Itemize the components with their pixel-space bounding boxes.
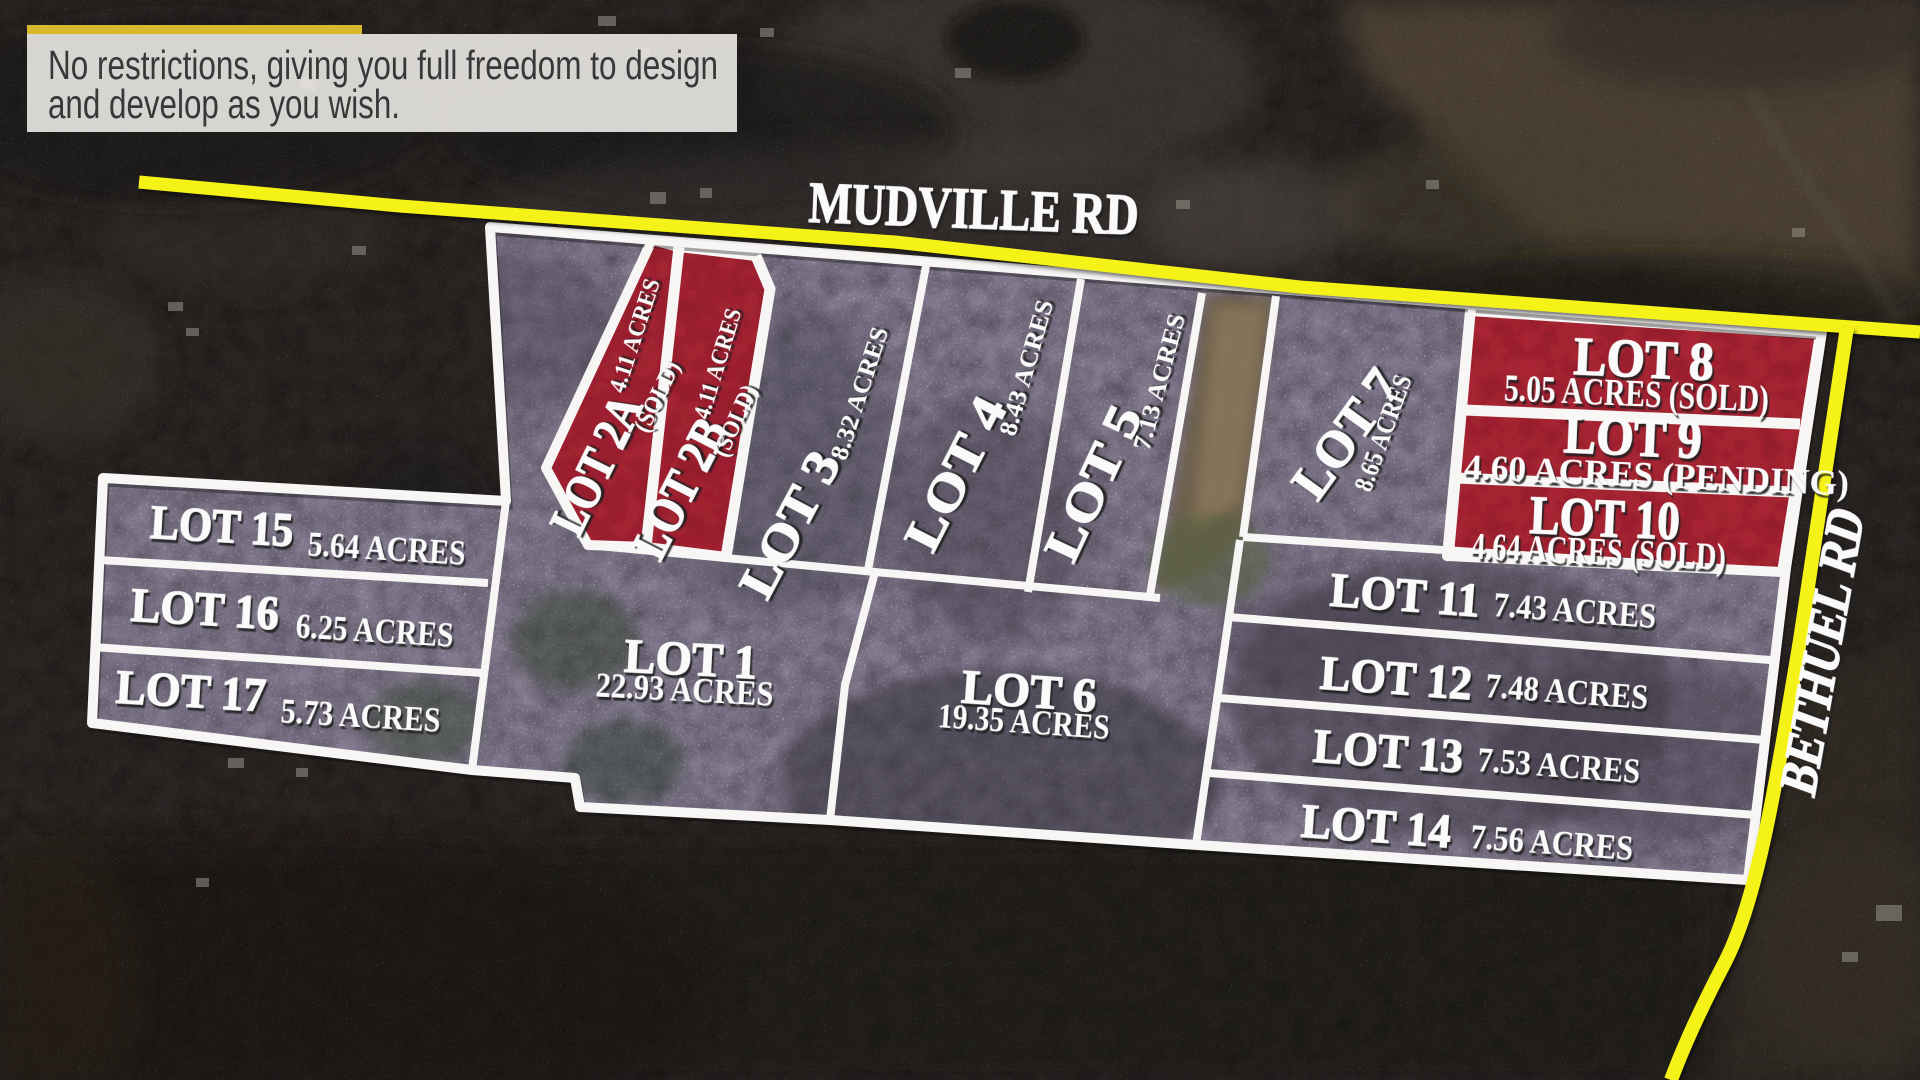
svg-text:LOT 13: LOT 13 — [1311, 720, 1464, 784]
svg-text:LOT 17: LOT 17 — [114, 661, 267, 723]
svg-text:MUDVILLE RD: MUDVILLE RD — [808, 170, 1140, 248]
svg-text:LOT 14: LOT 14 — [1299, 795, 1452, 859]
svg-text:and develop as you wish.: and develop as you wish. — [48, 81, 400, 127]
svg-text:LOT 16: LOT 16 — [129, 579, 280, 641]
svg-text:LOT 12: LOT 12 — [1318, 647, 1473, 711]
svg-text:LOT 15: LOT 15 — [149, 496, 295, 557]
svg-text:LOT 11: LOT 11 — [1328, 564, 1481, 628]
